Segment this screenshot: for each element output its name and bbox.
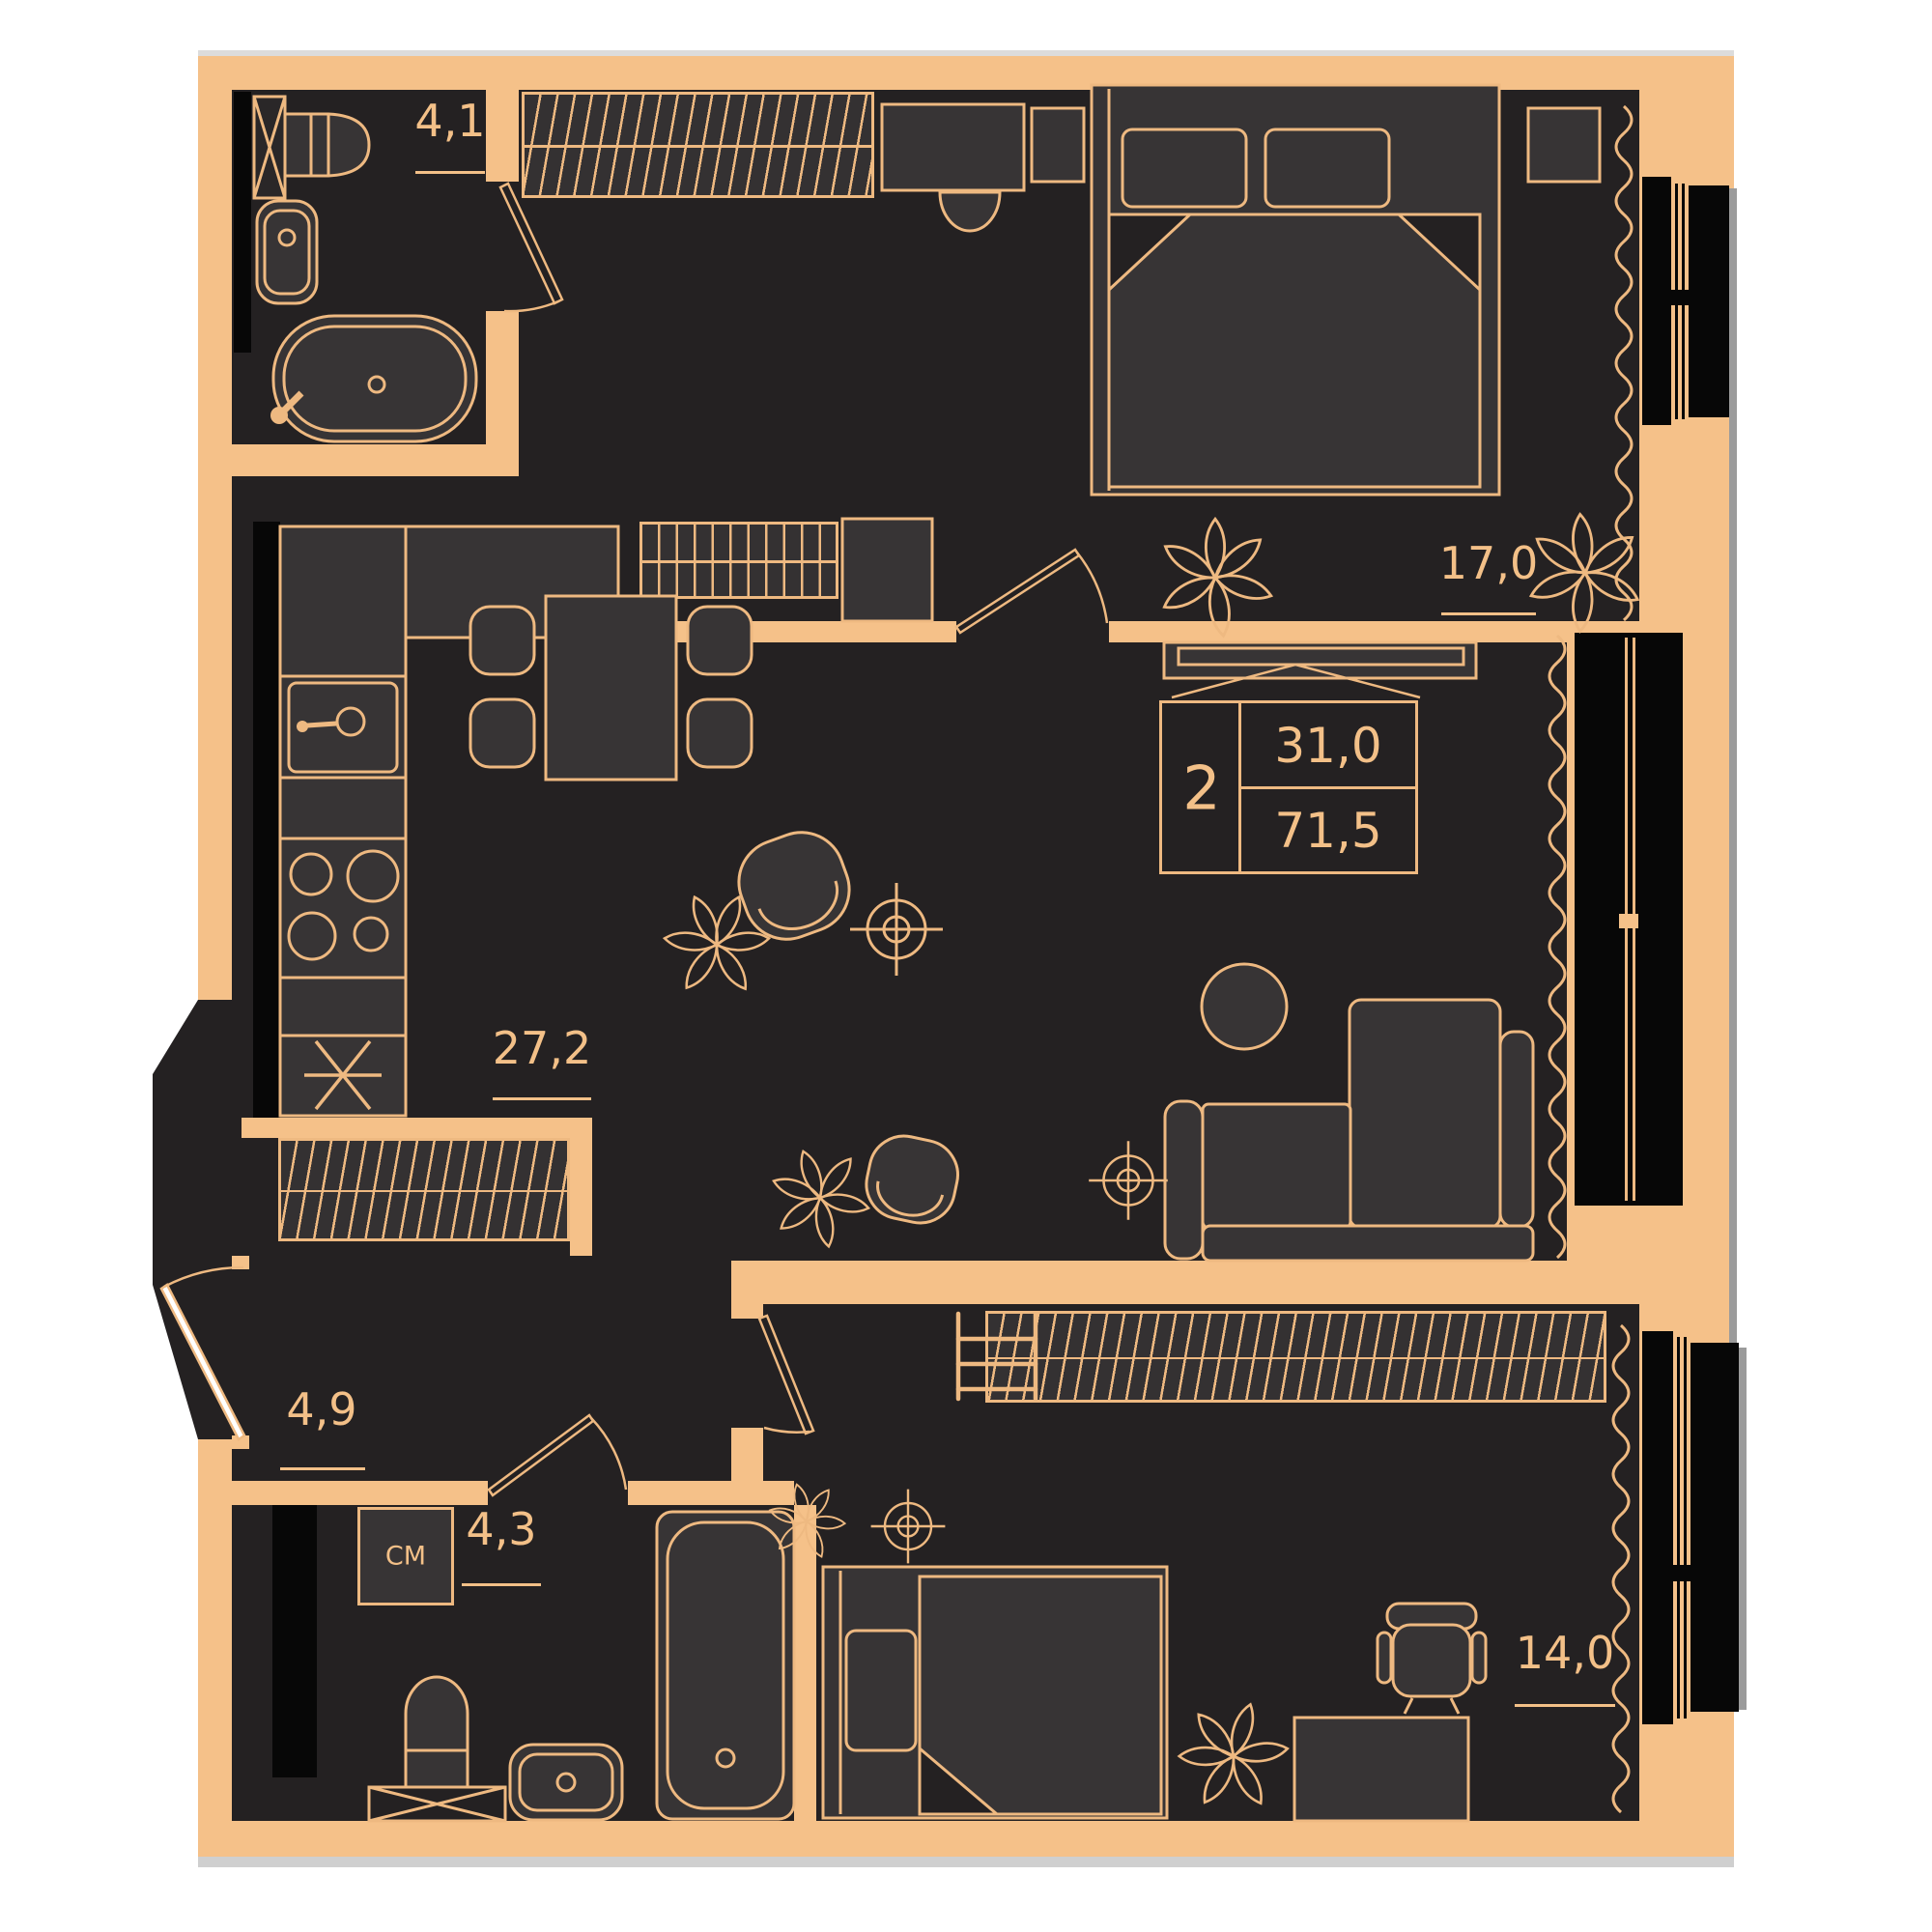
nightstand bbox=[1528, 108, 1600, 182]
tv-console bbox=[1164, 642, 1476, 678]
armchair bbox=[727, 820, 862, 951]
room-label-underline bbox=[415, 171, 485, 174]
vent-box bbox=[254, 97, 285, 198]
double-bed bbox=[1092, 85, 1499, 495]
ceiling-light-icon bbox=[1089, 1141, 1168, 1220]
bathtub bbox=[270, 316, 476, 441]
floor-plan: СМ bbox=[0, 0, 1932, 1932]
room-label-underline bbox=[493, 1097, 591, 1100]
room-label-underline bbox=[462, 1583, 541, 1586]
room-label-hallway: 4,9 bbox=[286, 1383, 356, 1435]
nightstand bbox=[1032, 108, 1084, 182]
curtain bbox=[1549, 636, 1565, 1258]
plant-icon bbox=[752, 1130, 887, 1265]
room-label-bathroom-1: 4,1 bbox=[414, 95, 485, 147]
info-living-area: 31,0 bbox=[1274, 718, 1381, 774]
cabinet bbox=[842, 519, 932, 621]
info-total-area: 71,5 bbox=[1274, 803, 1381, 859]
toilet bbox=[406, 1677, 468, 1787]
toilet bbox=[285, 114, 369, 176]
plant-icon bbox=[1132, 494, 1297, 660]
sink bbox=[510, 1745, 622, 1820]
door-bathroom1 bbox=[500, 184, 562, 311]
dining-table bbox=[470, 596, 752, 780]
desk bbox=[1294, 1718, 1468, 1821]
door-bathroom2 bbox=[489, 1415, 626, 1495]
room-label-kitchen-living: 27,2 bbox=[493, 1022, 591, 1074]
ceiling-light-icon bbox=[850, 883, 943, 976]
desk-chair bbox=[940, 192, 1000, 231]
door-bedroom2 bbox=[759, 1316, 813, 1434]
room-label-bathroom-2: 4,3 bbox=[466, 1503, 536, 1555]
sink bbox=[257, 201, 317, 303]
room-label-bedroom-2: 14,0 bbox=[1516, 1627, 1614, 1679]
plant-icon bbox=[1156, 1680, 1310, 1833]
shower-tray bbox=[369, 1787, 505, 1821]
armchair bbox=[860, 1129, 964, 1229]
drying-ladder bbox=[958, 1314, 1036, 1399]
room-label-underline bbox=[1515, 1704, 1615, 1707]
single-bed bbox=[823, 1567, 1167, 1818]
side-table bbox=[1202, 964, 1287, 1049]
room-label-underline bbox=[280, 1467, 365, 1470]
door-entry bbox=[161, 1267, 244, 1439]
door-bedroom1 bbox=[956, 550, 1107, 633]
office-chair bbox=[1378, 1604, 1486, 1714]
room-label-bedroom-1: 17,0 bbox=[1439, 537, 1538, 589]
furniture-layer bbox=[0, 0, 1932, 1932]
desk bbox=[882, 104, 1024, 190]
bathtub bbox=[657, 1512, 794, 1819]
info-table-divider-h bbox=[1241, 786, 1415, 789]
info-table: 2 31,0 71,5 bbox=[1159, 700, 1418, 874]
curtain bbox=[1613, 1325, 1629, 1812]
ceiling-light-icon bbox=[871, 1490, 946, 1564]
info-rooms-count: 2 bbox=[1182, 753, 1220, 824]
room-label-underline bbox=[1441, 612, 1536, 615]
